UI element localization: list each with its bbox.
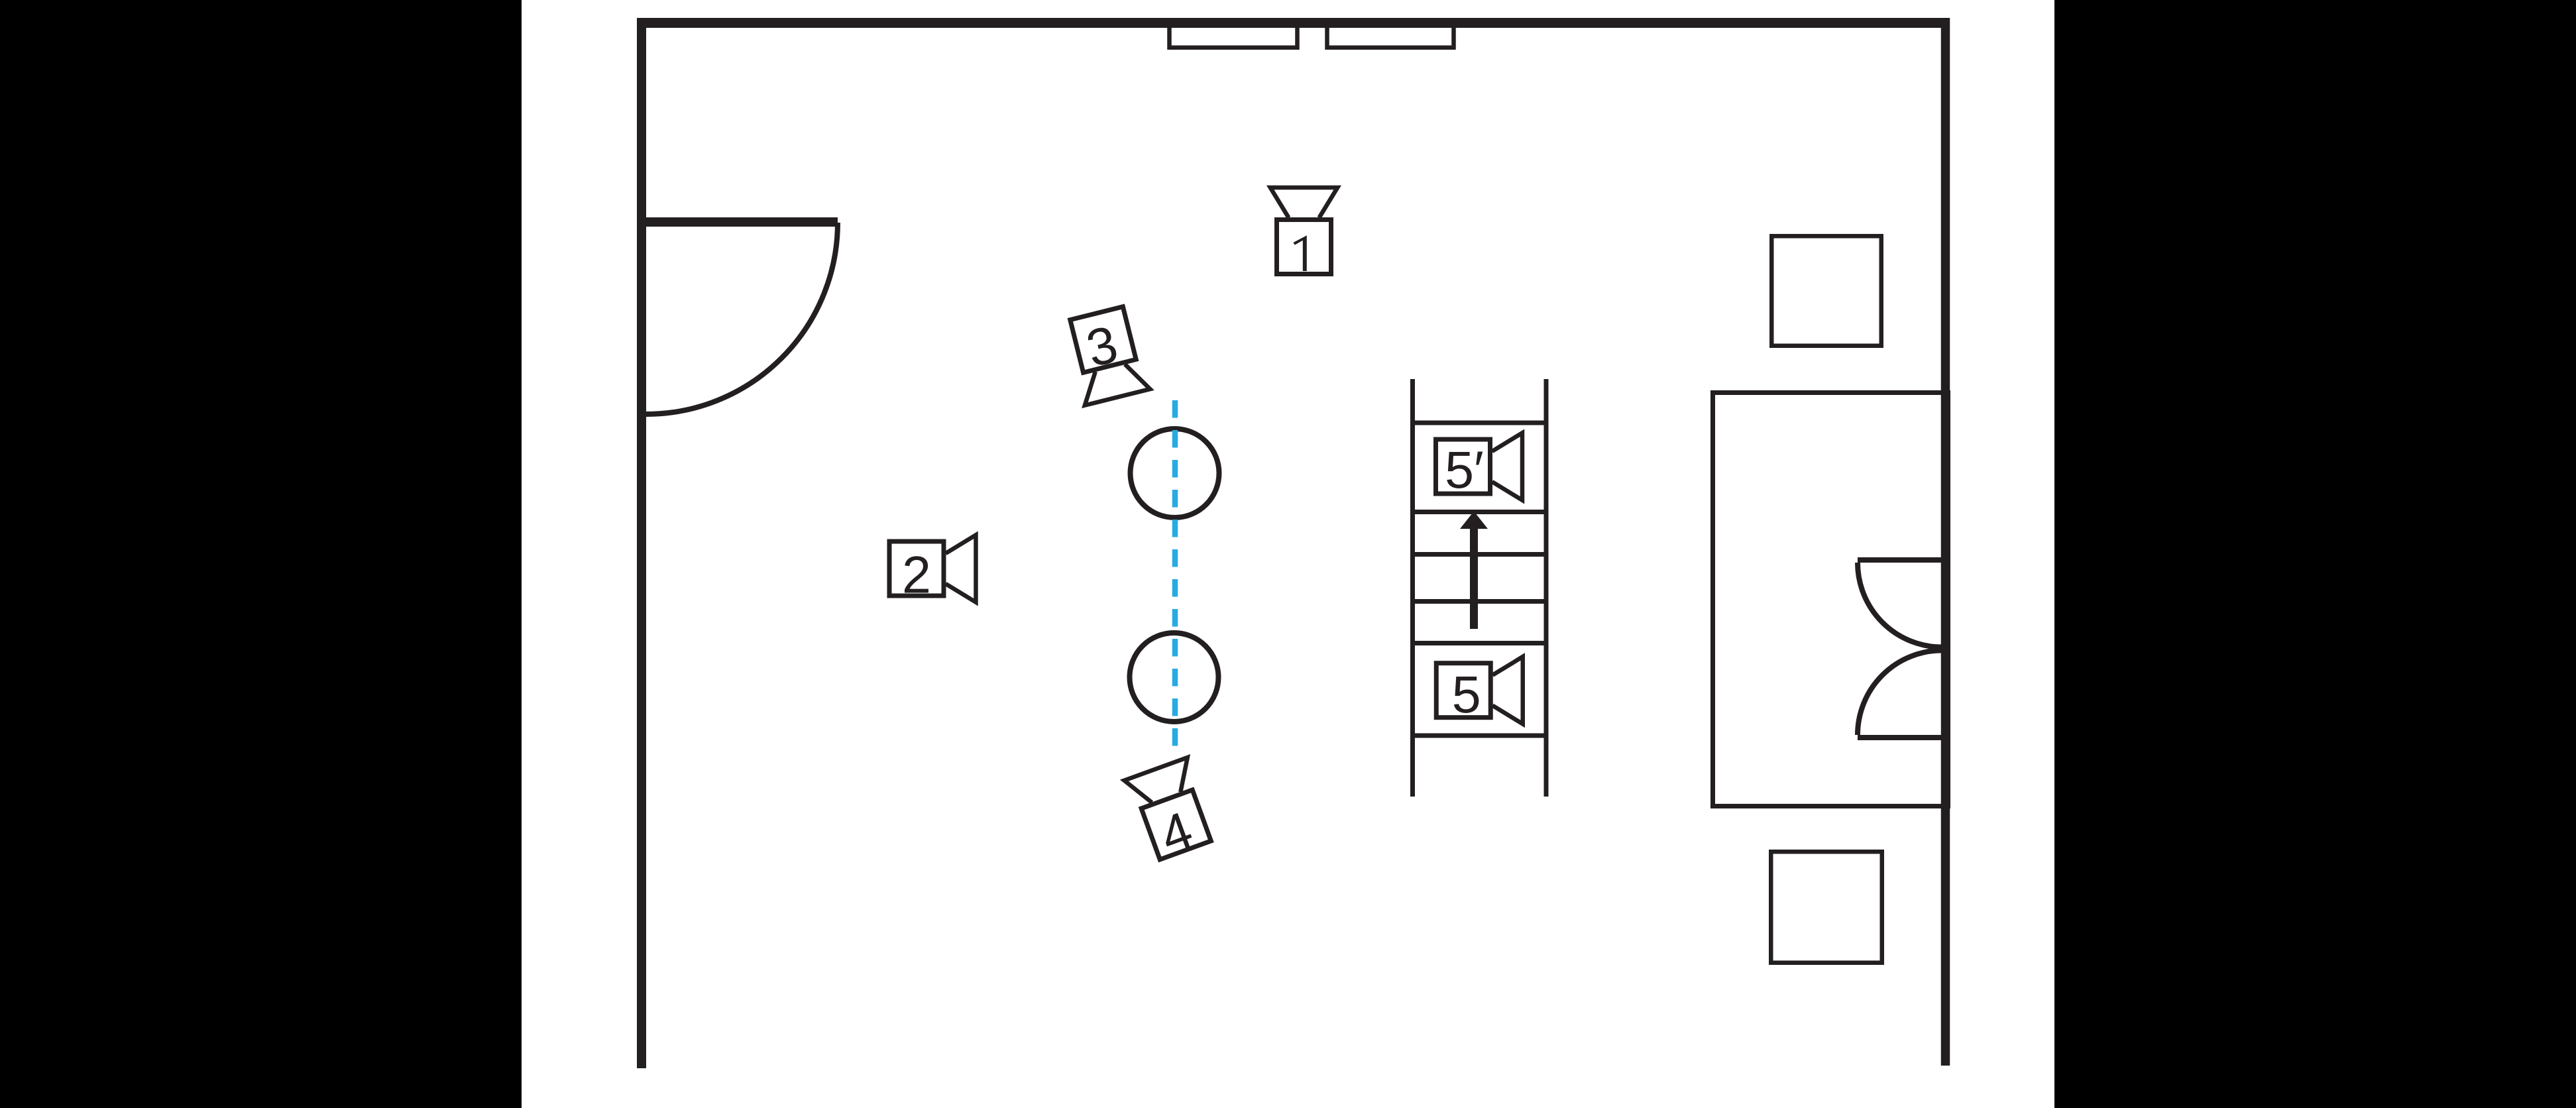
svg-text:5: 5 xyxy=(1452,665,1481,724)
svg-text:5′: 5′ xyxy=(1445,440,1484,499)
svg-text:2: 2 xyxy=(902,545,931,604)
